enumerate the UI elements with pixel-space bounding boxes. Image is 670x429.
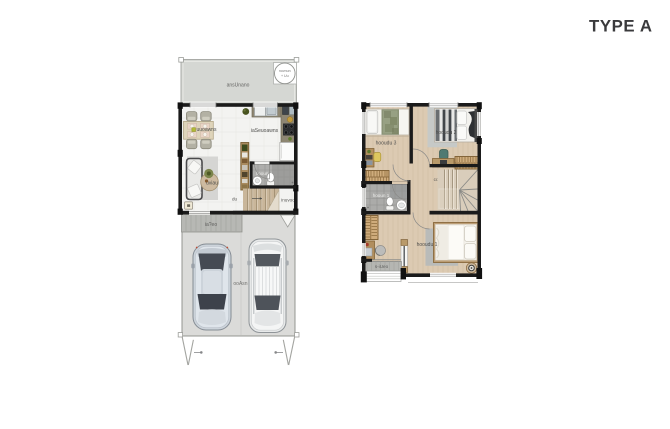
svg-text:ia?eo: ia?eo [205,222,217,228]
svg-text:hooudu 1: hooudu 1 [417,242,438,248]
svg-text:ansUnano: ansUnano [227,83,250,89]
svg-text:üviau: üviau [206,181,218,187]
svg-text:s-iUeo: s-iUeo [375,264,389,269]
svg-text:ooAsn: ooAsn [233,281,247,287]
svg-text:TYPE A: TYPE A [589,17,653,36]
svg-text:uuoawns: uuoawns [196,127,217,133]
svg-text:inuvoo: inuvoo [281,198,295,203]
svg-text:+ Uu: + Uu [281,74,289,78]
svg-text:novnun: novnun [279,69,291,73]
svg-text:du: du [232,197,238,202]
svg-text:hooun 1: hooun 1 [373,193,390,198]
svg-text:hooudu 3: hooudu 3 [376,141,397,147]
svg-text:hooudu 2: hooudu 2 [436,130,457,136]
svg-text:iaSeuoawns: iaSeuoawns [251,128,279,134]
